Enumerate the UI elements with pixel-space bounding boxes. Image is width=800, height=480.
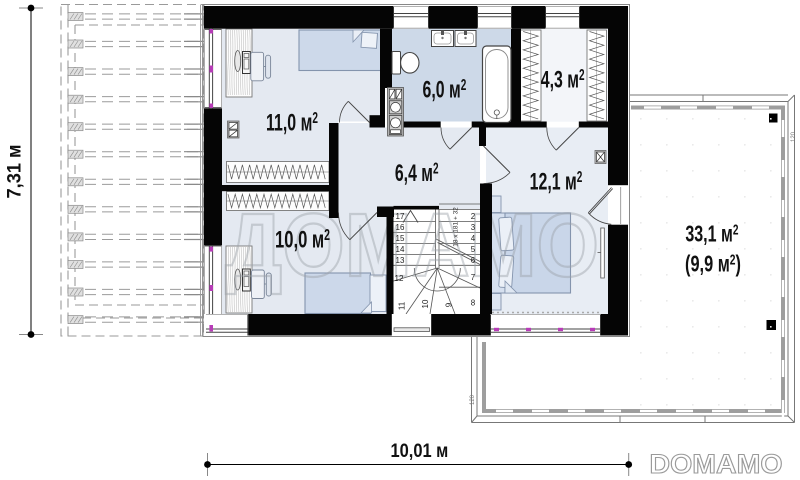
svg-text:16: 16 — [396, 223, 405, 232]
svg-text:6,4 м2: 6,4 м2 — [395, 159, 439, 187]
svg-text:10,01 м: 10,01 м — [390, 440, 448, 461]
svg-text:4: 4 — [471, 234, 476, 243]
svg-text:11,0 м2: 11,0 м2 — [266, 109, 318, 137]
svg-text:120: 120 — [791, 131, 797, 142]
svg-text:6,0 м2: 6,0 м2 — [423, 76, 467, 104]
svg-text:7,31 м: 7,31 м — [3, 144, 24, 198]
svg-text:14: 14 — [396, 245, 405, 254]
svg-text:120: 120 — [470, 394, 476, 405]
svg-text:7: 7 — [471, 273, 476, 282]
svg-text:2: 2 — [471, 212, 476, 221]
svg-text:DOMAMO: DOMAMO — [650, 449, 783, 479]
svg-text:17: 17 — [396, 212, 405, 221]
svg-text:10: 10 — [421, 299, 430, 308]
svg-text:10,0 м2: 10,0 м2 — [275, 226, 330, 253]
svg-text:13: 13 — [396, 256, 405, 265]
svg-text:15: 15 — [396, 234, 405, 243]
svg-text:18 x 181 + 32: 18 x 181 + 32 — [453, 207, 460, 247]
svg-text:8: 8 — [471, 299, 476, 308]
svg-text:6: 6 — [471, 256, 476, 265]
svg-text:33,1 м2: 33,1 м2 — [685, 222, 738, 248]
svg-text:3: 3 — [471, 223, 476, 232]
svg-text:12,1 м2: 12,1 м2 — [530, 168, 583, 196]
svg-text:4,3 м2: 4,3 м2 — [541, 66, 585, 94]
svg-text:9: 9 — [445, 302, 454, 307]
svg-text:5: 5 — [471, 245, 476, 254]
svg-text:11: 11 — [398, 301, 407, 310]
svg-text:12: 12 — [395, 274, 404, 283]
